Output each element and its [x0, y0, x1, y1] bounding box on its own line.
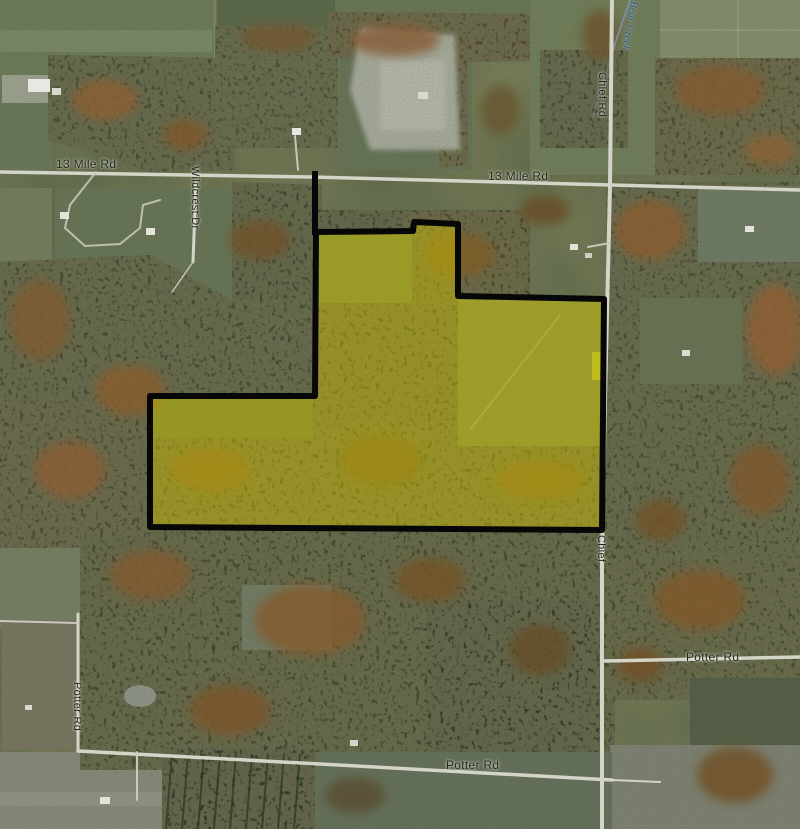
- map-canvas[interactable]: [0, 0, 800, 829]
- road-label-wildcrest-dr: Wildcrest Dr: [189, 166, 200, 230]
- road-label-chief-rd-north: Chief Rd: [596, 72, 607, 117]
- road-label-potter-rd-west: Potter Rd: [71, 682, 82, 731]
- road-label-chief-south: Chief: [595, 535, 606, 562]
- road-label-potter-rd-south: Potter Rd: [446, 759, 499, 771]
- road-label-potter-rd-east: Potter Rd: [686, 651, 739, 663]
- road-label-13-mile-center: 13 Mile Rd: [488, 170, 548, 182]
- road-label-13-mile-west: 13 Mile Rd: [56, 158, 116, 170]
- aerial-map-view: 13 Mile Rd 13 Mile Rd Wildcrest Dr Chief…: [0, 0, 800, 829]
